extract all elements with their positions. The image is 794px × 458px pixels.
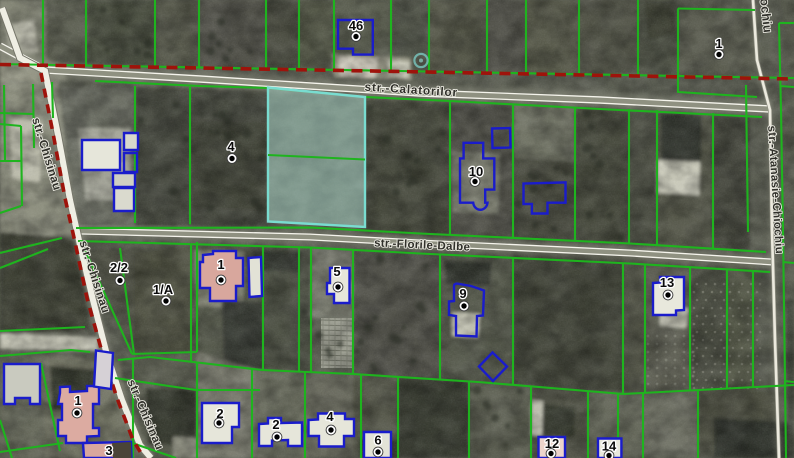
svg-text:1: 1 <box>74 393 81 408</box>
svg-text:1: 1 <box>715 36 722 51</box>
svg-text:2/2: 2/2 <box>110 260 128 275</box>
svg-text:9: 9 <box>459 286 466 301</box>
svg-text:6: 6 <box>374 433 381 448</box>
svg-text:1/A: 1/A <box>153 282 174 297</box>
svg-text:3: 3 <box>105 443 112 458</box>
svg-text:5: 5 <box>333 264 340 279</box>
svg-text:4: 4 <box>326 409 334 424</box>
svg-text:2: 2 <box>272 417 279 432</box>
svg-text:4: 4 <box>227 139 235 154</box>
svg-text:1: 1 <box>217 257 224 272</box>
svg-text:13: 13 <box>660 275 674 290</box>
svg-text:46: 46 <box>349 18 363 33</box>
